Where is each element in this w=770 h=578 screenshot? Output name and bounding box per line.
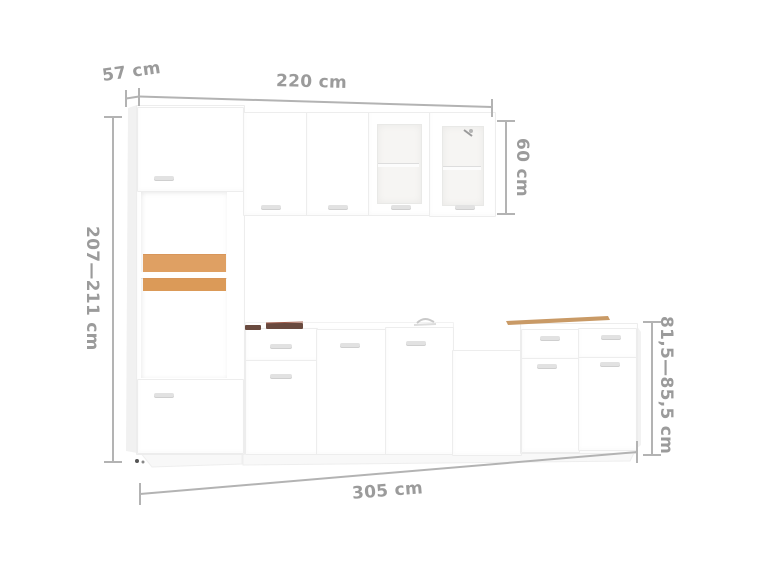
base-unit-3-door-handle: [406, 341, 426, 345]
dim-label-total-width: 305 cm: [351, 478, 423, 504]
dim-line-total-height-207-211: [104, 117, 122, 462]
wall-cabinet-glass-door-1-handle: [391, 205, 411, 209]
base-unit-4-front: [452, 350, 522, 456]
wall-cabinet-door-1-handle: [261, 205, 281, 209]
dim-label-base-height: 81,5—85,5 cm: [656, 316, 676, 454]
wood-back-panel-upper: [143, 254, 226, 273]
base-unit-5-door-right-handle: [600, 362, 620, 366]
wall-cabinet-door-2-handle: [328, 205, 348, 209]
base-unit-5-drawer-left-handle: [540, 336, 560, 340]
glass-cabinet-shelf-2: [443, 166, 481, 170]
base-unit-3-door: [385, 327, 454, 455]
base-unit-5-door-right: [578, 357, 637, 451]
glass-cabinet-shelf-1: [378, 163, 419, 167]
product-dimension-image: 57 cm 220 cm 60 cm 207—211 cm 81,5—85,5 …: [0, 0, 770, 578]
tall-cabinet-bottom-door-handle: [154, 393, 174, 397]
dim-label-upper-height: 60 cm: [512, 138, 532, 197]
cabinet-foot-detail: [135, 459, 145, 464]
base-unit-5-door-left: [521, 358, 580, 453]
tall-cabinet-top-door: [137, 107, 244, 192]
base-unit-2-door: [316, 329, 387, 455]
tall-cabinet-top-door-handle: [154, 176, 174, 180]
base-unit-1-drawer-handle: [270, 344, 292, 348]
wall-cabinet-glass-door-2-handle: [455, 205, 475, 209]
base-unit-1-door-handle: [270, 374, 292, 378]
base-unit-5-drawer-left: [521, 329, 580, 360]
base-unit-5-drawer-right-handle: [601, 335, 621, 339]
dim-label-total-height: 207—211 cm: [82, 226, 102, 351]
base-unit-2-door-handle: [340, 343, 360, 347]
base-unit-5-door-left-handle: [537, 364, 557, 368]
tall-cabinet-bottom-door: [137, 379, 244, 454]
base-unit-5-drawer-right: [578, 328, 637, 359]
wood-back-panel-lower: [143, 278, 226, 291]
dim-label-depth: 57 cm: [101, 58, 162, 86]
dim-label-upper-width: 220 cm: [276, 71, 347, 93]
wall-cabinet-door-1: [243, 112, 308, 216]
wall-cabinet-door-2: [306, 112, 370, 216]
